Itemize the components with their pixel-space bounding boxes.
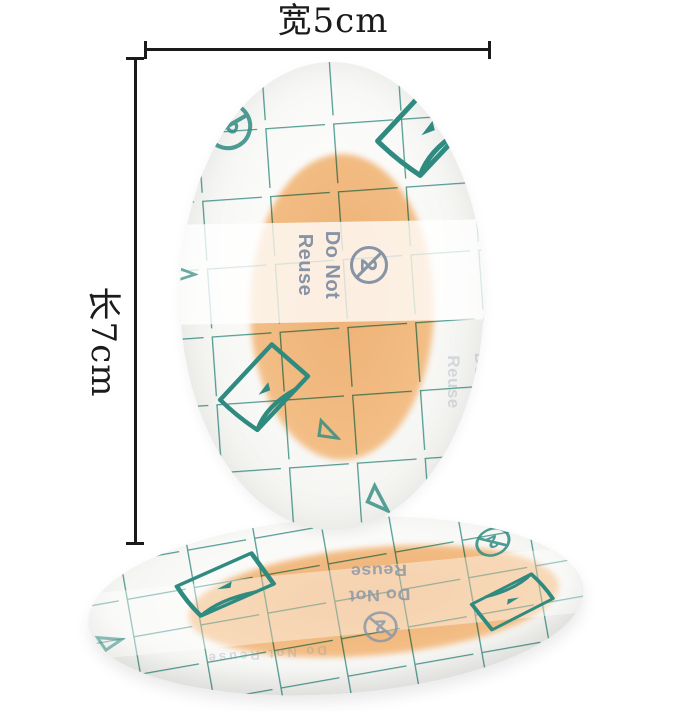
warning-line1: Do Not bbox=[469, 353, 484, 412]
length-dimension-cap-top bbox=[126, 57, 144, 60]
length-dimension-line bbox=[134, 58, 137, 545]
warning-line1: Do Not bbox=[321, 231, 343, 300]
faint-do-not-reuse-print: Do Not Reuse bbox=[435, 327, 484, 437]
bottom-dressing: 2 Do Not Reuse Do Not Reuse 2 bbox=[88, 518, 584, 694]
main-dressing: 2 Do Not Reuse Do Not Reuse 2 bbox=[180, 62, 484, 530]
width-dimension-line bbox=[146, 48, 490, 51]
product-photo-canvas: 宽5cm 长7cm bbox=[0, 0, 700, 700]
warning-line1: Do Not bbox=[348, 584, 411, 606]
do-not-reuse-print: 2 Do Not Reuse bbox=[294, 205, 390, 325]
length-dimension-label: 长7cm bbox=[83, 262, 123, 422]
width-dimension-cap-left bbox=[144, 41, 147, 59]
alignment-triangle-icon bbox=[317, 416, 344, 441]
width-dimension-cap-right bbox=[488, 41, 491, 59]
warning-line2: Reuse bbox=[350, 560, 407, 582]
no-reuse-icon: 2 bbox=[348, 242, 390, 288]
warning-line2: Reuse bbox=[294, 234, 316, 297]
warning-line2: Reuse bbox=[442, 355, 464, 409]
width-dimension-label: 宽5cm bbox=[233, 0, 433, 42]
bottom-dressing-film: 2 Do Not Reuse Do Not Reuse 2 bbox=[82, 501, 589, 711]
do-not-reuse-print: 2 Do Not Reuse bbox=[323, 552, 436, 646]
no-reuse-icon: 2 bbox=[361, 609, 400, 645]
